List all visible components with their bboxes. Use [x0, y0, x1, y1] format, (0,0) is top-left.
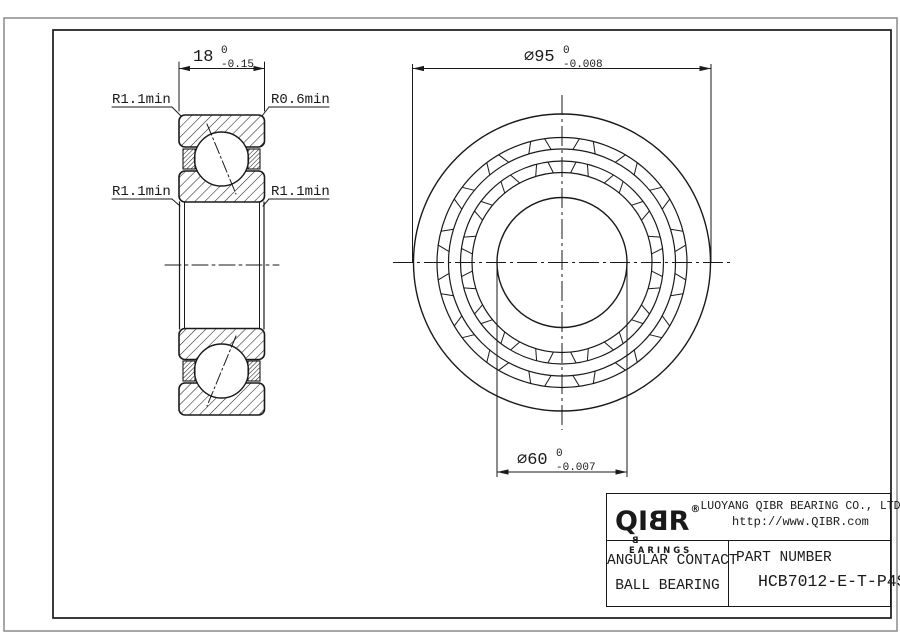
- product-type-line2: BALL BEARING: [607, 574, 728, 599]
- dim-bore-text: ⌀60: [517, 451, 548, 470]
- cage-top-right: [248, 149, 260, 169]
- label-radius-top-right: R0.6min: [271, 92, 330, 108]
- leader-top-right: [262, 107, 269, 116]
- leader-top-left: [172, 107, 181, 116]
- logo-suffix: R: [669, 506, 690, 537]
- logo-flipped-letter: B: [648, 508, 669, 535]
- ball-bottom: [195, 344, 249, 398]
- logo-wordmark: QIBR®: [615, 506, 700, 537]
- dim-outer-arrow-left: [413, 66, 425, 71]
- company-website: http://www.QIBR.com: [700, 514, 900, 530]
- label-radius-mid-left: R1.1min: [112, 184, 171, 200]
- label-radius-mid-right: R1.1min: [271, 184, 330, 200]
- front-view: ⌀95 0 -0.008 ⌀60 0 -0.007: [393, 45, 731, 477]
- dim-bore-tol-upper: 0: [556, 448, 563, 460]
- leader-mid-left: [172, 199, 180, 206]
- company-info: LUOYANG QIBR BEARING CO., LTD http://www…: [700, 494, 900, 540]
- cage-bottom-right: [248, 361, 260, 381]
- part-number-cell: PART NUMBER HCB7012-E-T-P4S: [729, 541, 900, 606]
- section-view: 18 0 -0.15 R1.1min R0.6min R1.1min: [112, 45, 330, 415]
- part-number-value: HCB7012-E-T-P4S: [758, 569, 900, 595]
- title-block-detail-row: ANGULAR CONTACT BALL BEARING PART NUMBER…: [607, 541, 890, 606]
- dim-bore-arrow-right: [616, 469, 628, 474]
- dim-width-tol-upper: 0: [221, 45, 228, 57]
- cage-bottom-left: [183, 361, 195, 381]
- dim-outer-tol-lower: -0.008: [563, 59, 603, 71]
- product-type-line1: ANGULAR CONTACT: [607, 549, 728, 574]
- dim-outer-tol-upper: 0: [563, 45, 570, 57]
- title-block: QIBR® BEARINGS LUOYANG QIBR BEARING CO.,…: [606, 493, 891, 607]
- dim-width-arrow-left: [179, 66, 190, 71]
- cage-top-left: [183, 149, 195, 169]
- dim-outer-text: ⌀95: [524, 48, 555, 67]
- ball-top: [195, 132, 249, 186]
- title-block-header-row: QIBR® BEARINGS LUOYANG QIBR BEARING CO.,…: [607, 494, 890, 541]
- part-number-label: PART NUMBER: [736, 547, 900, 569]
- company-name: LUOYANG QIBR BEARING CO., LTD: [700, 499, 900, 514]
- registered-mark: ®: [690, 504, 700, 515]
- dim-width-tol-lower: -0.15: [221, 59, 254, 71]
- dim-width-text: 18: [193, 48, 213, 67]
- dim-outer-arrow-right: [700, 66, 712, 71]
- label-radius-top-left: R1.1min: [112, 92, 171, 108]
- drawing-sheet: 18 0 -0.15 R1.1min R0.6min R1.1min: [0, 0, 900, 636]
- product-type-cell: ANGULAR CONTACT BALL BEARING: [607, 541, 729, 606]
- logo-prefix: QI: [615, 506, 648, 537]
- company-logo: QIBR® BEARINGS: [607, 494, 700, 540]
- dim-width-arrow-right: [254, 66, 265, 71]
- dim-bore-arrow-left: [497, 469, 509, 474]
- dim-bore-tol-lower: -0.007: [556, 462, 596, 474]
